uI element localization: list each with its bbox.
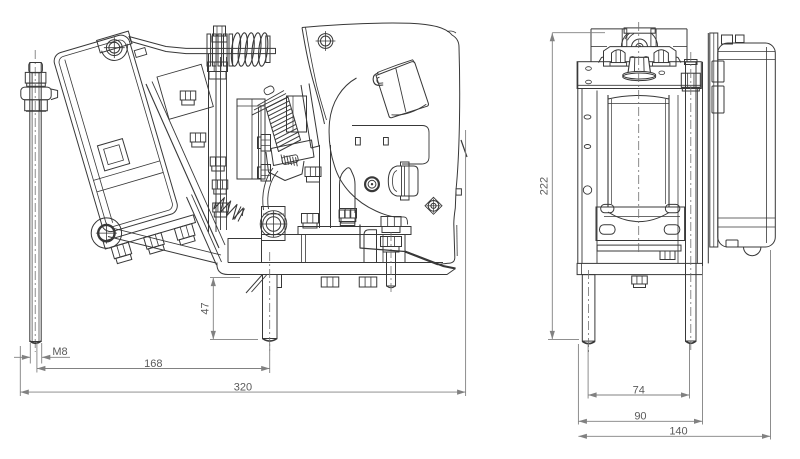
svg-text:47: 47 <box>200 302 212 314</box>
svg-text:168: 168 <box>144 358 162 370</box>
svg-text:320: 320 <box>234 382 252 394</box>
svg-text:140: 140 <box>669 426 687 438</box>
svg-text:90: 90 <box>634 411 646 423</box>
svg-text:222: 222 <box>539 177 551 195</box>
svg-text:74: 74 <box>633 384 645 396</box>
svg-text:M8: M8 <box>52 346 67 358</box>
